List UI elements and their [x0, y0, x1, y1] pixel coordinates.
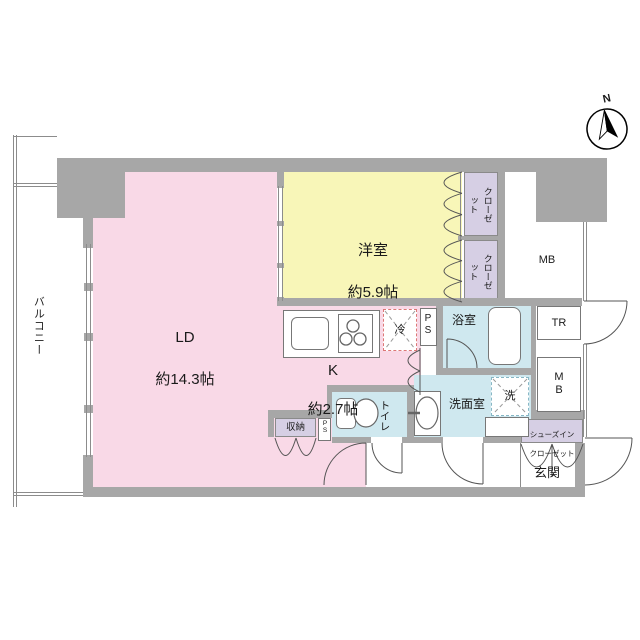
compass-north-label: N [595, 90, 620, 110]
wall-top-band [57, 158, 607, 172]
window-frame-1 [84, 283, 93, 291]
shoes-closet-line1: シューズイン [521, 430, 583, 439]
balcony-label: バルコニー [30, 296, 45, 356]
slider-post-1 [277, 172, 284, 188]
kitchen-name: K [263, 361, 403, 381]
slider-post-2 [277, 221, 284, 226]
wall-toilet-right [407, 385, 414, 443]
ld-size: 約14.3帖 [115, 369, 255, 390]
wall-bottom [83, 487, 585, 497]
bathroom-label: 浴室 [433, 312, 495, 329]
closet-bottom-label: クローゼット [466, 253, 495, 291]
compass-icon [584, 106, 629, 151]
wall-right-block [536, 158, 607, 222]
slider-post-3 [277, 263, 284, 268]
wall-bath-bottom [436, 368, 531, 375]
pipe-shaft-small-label: PS [321, 420, 329, 435]
window-frame-3 [84, 405, 93, 413]
western-size: 約5.9帖 [303, 282, 443, 303]
meter-box-right-label: MB [553, 371, 565, 396]
ld-name: LD [115, 327, 255, 348]
western-name: 洋室 [303, 240, 443, 261]
ld-label: LD 約14.3帖 [115, 306, 255, 411]
window-frame-2 [84, 333, 93, 341]
western-room-label: 洋室 約5.9帖 [303, 219, 443, 324]
shoes-closet-label: シューズイン クローゼット [521, 421, 583, 468]
wall-closet-divider [458, 236, 498, 240]
fridge-label: 冷 [388, 323, 412, 338]
trunk-room-label: TR [537, 316, 581, 331]
wall-closet-mb [498, 172, 505, 306]
floor-plan: N バルコニー LD 約14.3帖 洋室 約5.9帖 K 約2.7帖 クローゼッ… [0, 0, 640, 640]
meter-box-top-label: MB [527, 253, 567, 268]
entrance-label: 玄関 [517, 464, 577, 482]
vestibule-floor [421, 346, 436, 375]
pipe-shaft-top-label: PS [422, 313, 434, 336]
toilet-label: トイレ [378, 395, 390, 437]
washroom-label: 洗面室 [427, 396, 507, 413]
shoes-closet-line2: クローゼット [521, 449, 583, 458]
wall-hall-seg3 [483, 437, 521, 443]
slider-post-4 [277, 297, 284, 306]
washer-label: 洗 [498, 389, 522, 404]
closet-top-label: クローゼット [466, 186, 495, 224]
wall-wet-right [531, 298, 536, 419]
wall-left-block [57, 158, 125, 218]
wall-left-stub [83, 218, 93, 248]
wall-hall-seg2 [402, 437, 443, 443]
storage-label: 収納 [275, 421, 316, 434]
